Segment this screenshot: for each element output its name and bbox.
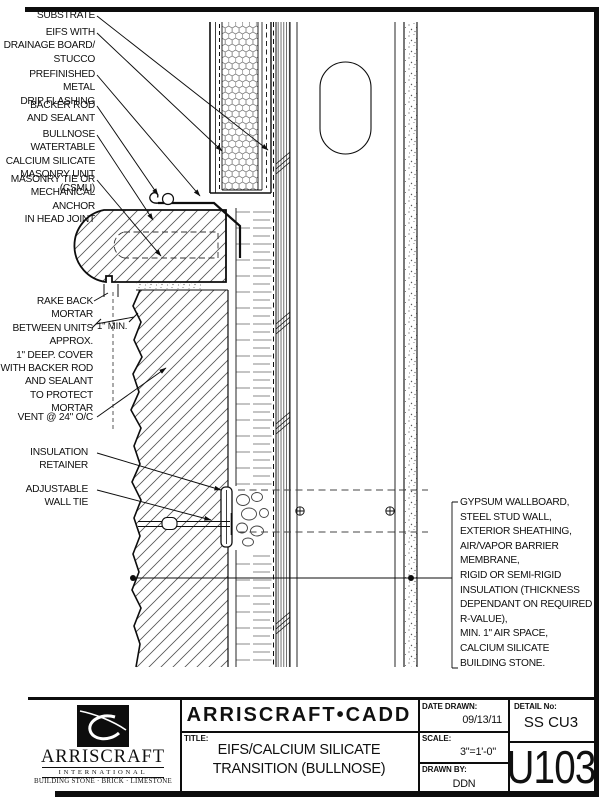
stud-knockout: [320, 62, 371, 154]
dimension-label: 1" MIN.: [97, 321, 127, 332]
date-label: DATE DRAWN:: [422, 702, 477, 711]
sheet-number: U103: [517, 742, 586, 792]
mortar-bed: [136, 283, 202, 289]
callout-insulation-retainer: INSULATION RETAINER: [0, 446, 88, 473]
border-right: [594, 7, 599, 797]
scale-label: SCALE:: [422, 734, 451, 743]
drip-hook: [150, 193, 158, 203]
tb-divider: [180, 731, 420, 733]
callout-backer-rod: BACKER ROD AND SEALANT: [0, 99, 95, 126]
drawing-sheet: SUBSTRATE EIFS WITH DRAINAGE BOARD/ STUC…: [0, 0, 603, 800]
callout-masonry-tie: MASONRY TIE OR MECHANICAL ANCHOR IN HEAD…: [0, 173, 95, 227]
callout-vent: VENT @ 24" O/C: [0, 411, 93, 424]
detail-no-label: DETAIL No:: [514, 702, 557, 711]
raked-joint: [104, 284, 118, 297]
drawn-by-value: DDN: [418, 778, 510, 790]
logo-tagline: BUILDING STONE · BRICK · LIMESTONE: [28, 778, 178, 785]
arriscraft-logo-icon: [77, 705, 129, 747]
callout-eifs: EIFS WITH DRAINAGE BOARD/ STUCCO: [0, 26, 95, 66]
callout-rake-mortar: RAKE BACK MORTAR BETWEEN UNITS APPROX. 1…: [0, 295, 93, 416]
scale-value: 3"=1'-0": [422, 746, 496, 758]
tie-barrel: [162, 518, 177, 530]
drawing-title: EIFS/CALCIUM SILICATE TRANSITION (BULLNO…: [182, 741, 416, 779]
gypsum-board: [404, 22, 417, 667]
date-value: 09/13/11: [422, 714, 502, 726]
wall-assembly-note: GYPSUM WALLBOARD, STEEL STUD WALL, EXTER…: [460, 496, 598, 671]
brand-title: ARRISCRAFT•CADD: [182, 700, 416, 731]
note-bracket: [452, 502, 458, 668]
backer-rod-section: [163, 194, 174, 205]
title-block: ARRISCRAFT INTERNATIONAL BUILDING STONE …: [28, 697, 594, 791]
logo-subtitle: INTERNATIONAL: [42, 767, 164, 778]
tb-divider: [418, 762, 510, 764]
stone-veneer: [104, 283, 228, 667]
callout-wall-tie: ADJUSTABLE WALL TIE: [0, 483, 88, 510]
drawn-by-label: DRAWN BY:: [422, 765, 467, 774]
bullnose-unit: [74, 210, 226, 282]
insulation-layer: [236, 208, 272, 667]
tb-divider: [418, 731, 510, 733]
border-top: [25, 7, 599, 12]
stud-wall-layer: [297, 22, 417, 667]
logo-wordmark: ARRISCRAFT: [28, 747, 178, 768]
screw-symbols: [296, 507, 394, 515]
eifs-assembly: [210, 22, 271, 193]
sheathing-layer: [274, 22, 291, 667]
detail-no-value: SS CU3: [510, 714, 592, 731]
